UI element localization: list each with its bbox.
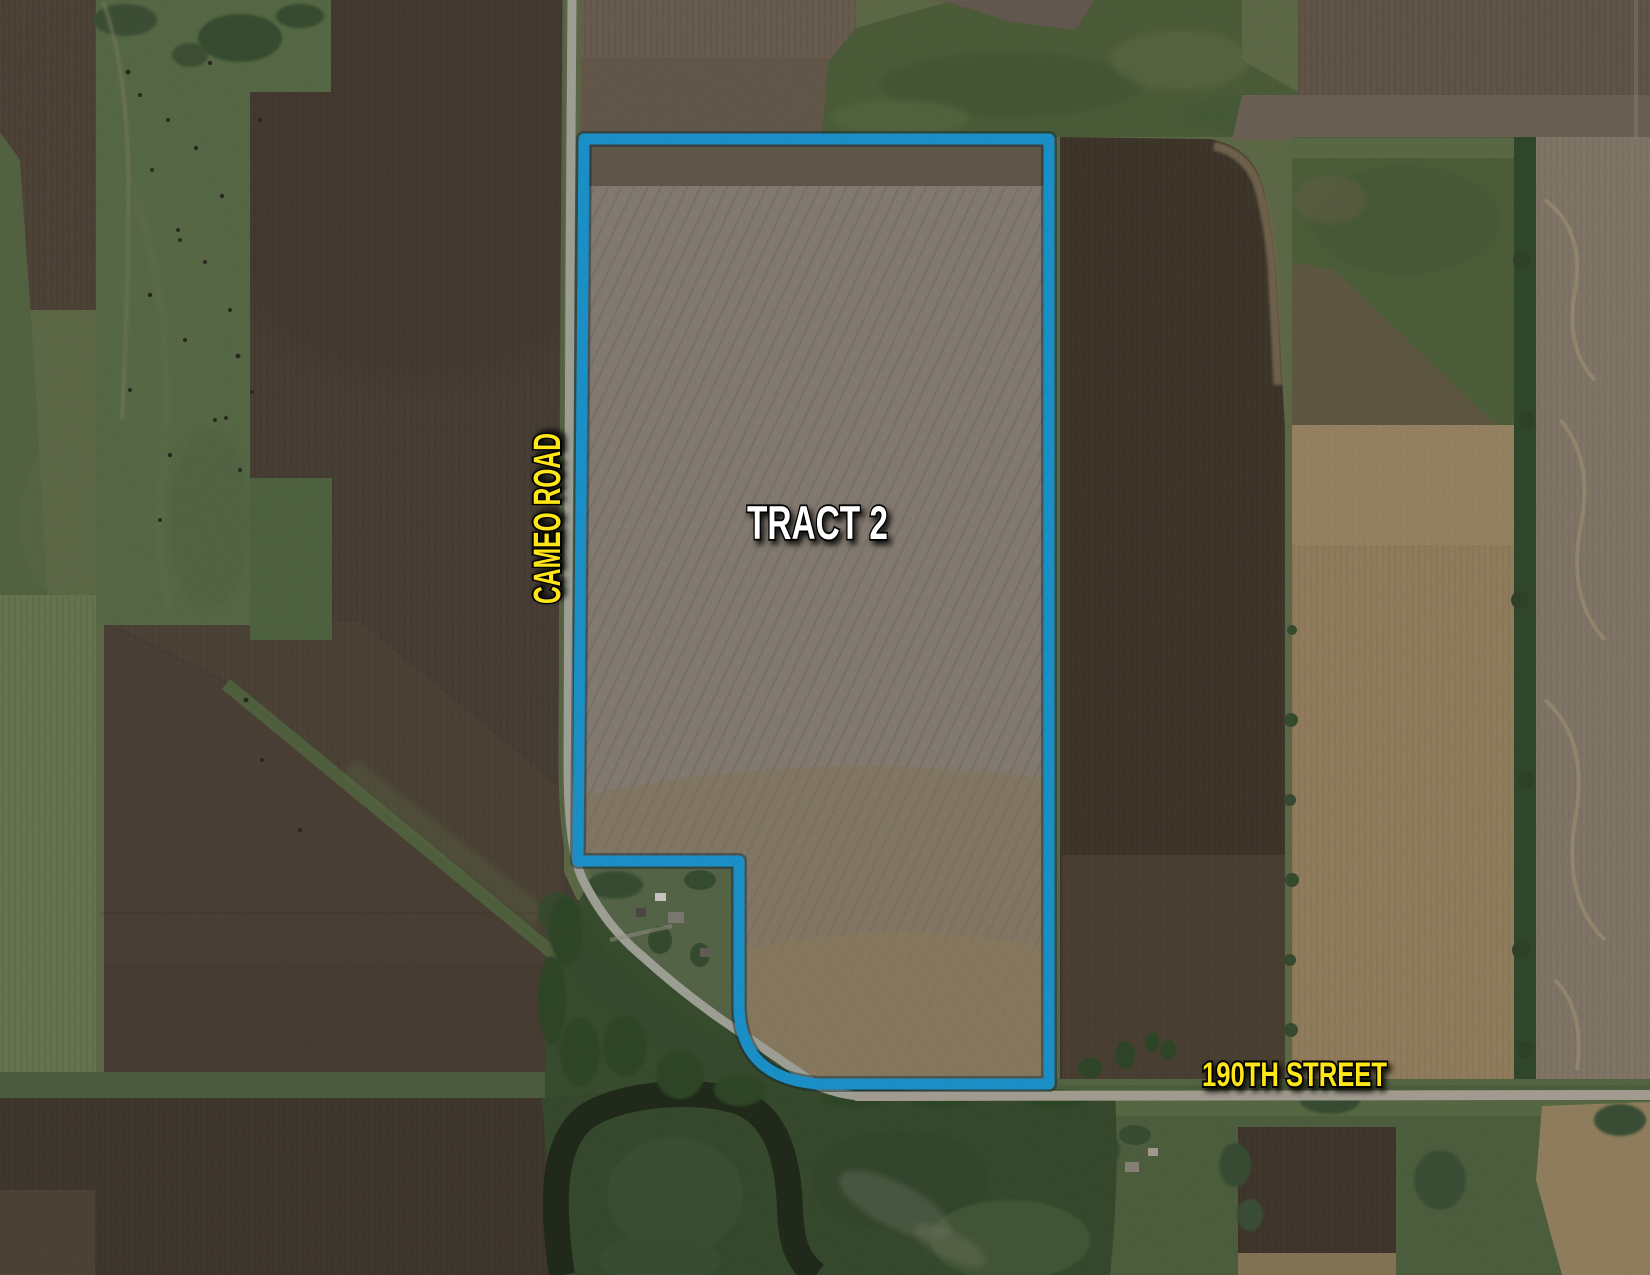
svg-text:TRACT 2: TRACT 2	[747, 496, 888, 549]
svg-text:CAMEO ROAD: CAMEO ROAD	[527, 433, 569, 604]
svg-text:190TH STREET: 190TH STREET	[1202, 1056, 1387, 1094]
